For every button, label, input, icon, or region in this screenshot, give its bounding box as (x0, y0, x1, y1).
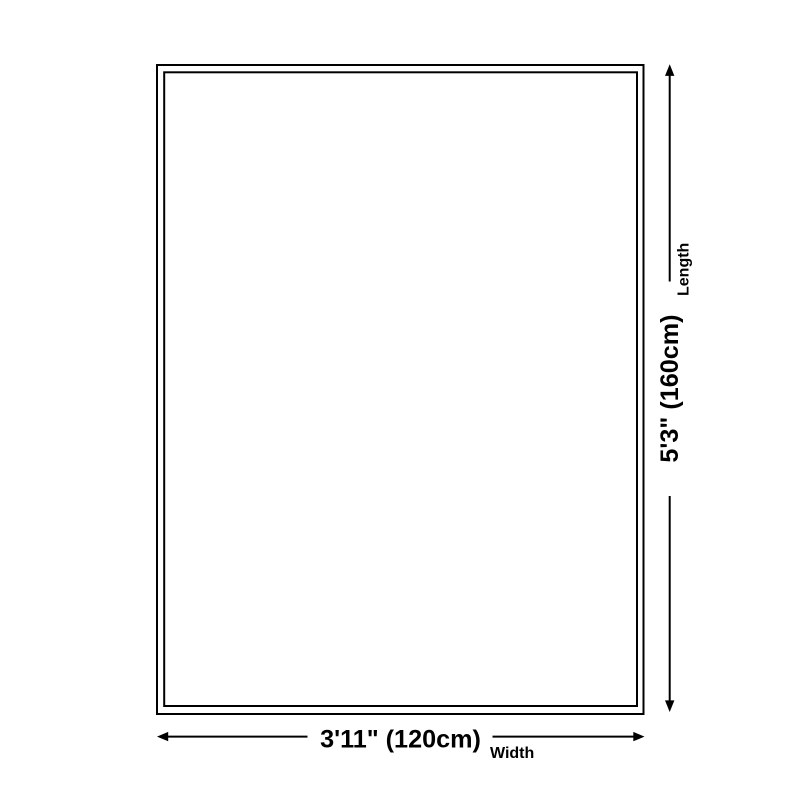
svg-text:5'3" (160cm): 5'3" (160cm) (656, 314, 684, 462)
svg-text:Width: Width (490, 745, 534, 762)
svg-text:3'11" (120cm): 3'11" (120cm) (320, 725, 481, 753)
svg-text:Length: Length (676, 243, 693, 296)
